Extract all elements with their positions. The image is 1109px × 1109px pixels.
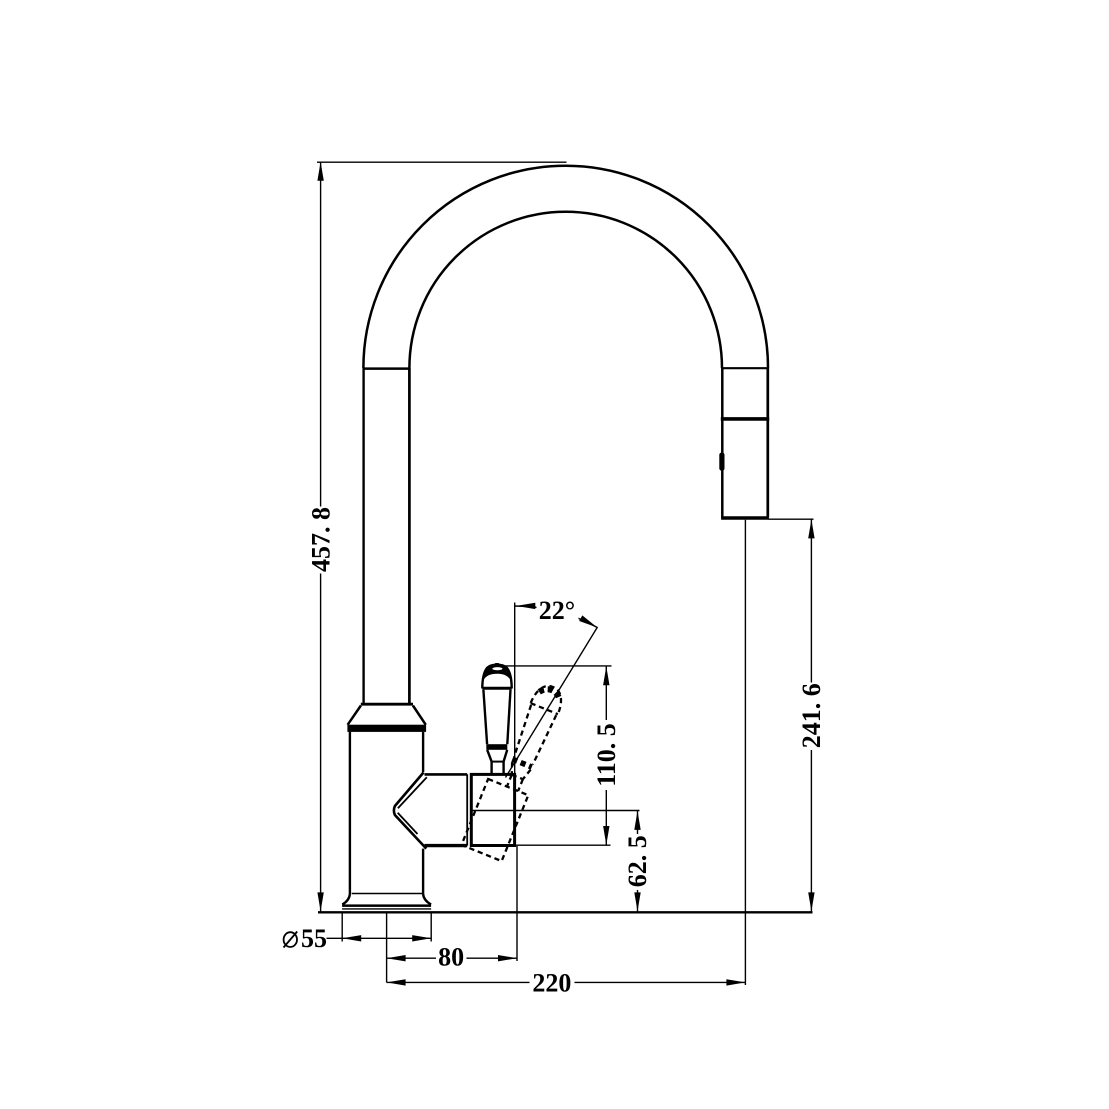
svg-text:55: 55: [301, 924, 327, 953]
svg-text:80: 80: [438, 942, 464, 971]
svg-text:241. 6: 241. 6: [797, 683, 826, 748]
svg-text:110. 5: 110. 5: [592, 723, 621, 787]
svg-text:22°: 22°: [539, 596, 575, 625]
svg-text:220: 220: [532, 968, 571, 997]
svg-text:457. 8: 457. 8: [306, 507, 335, 572]
svg-text:62. 5: 62. 5: [623, 835, 652, 887]
